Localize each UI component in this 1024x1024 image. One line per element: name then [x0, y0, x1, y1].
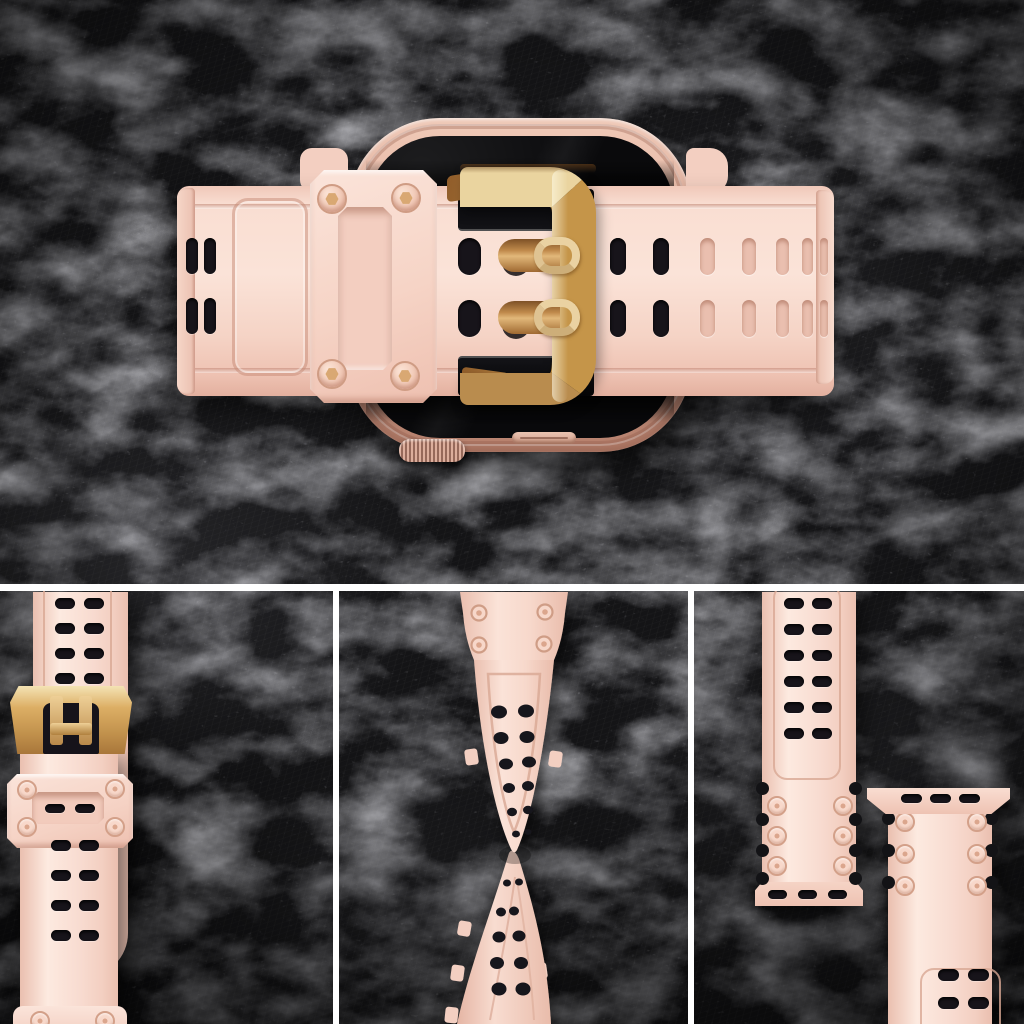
gold-buckle-frame — [460, 167, 596, 405]
perforation — [802, 300, 813, 337]
perforation — [79, 840, 99, 851]
band-end-cap-right — [816, 190, 834, 384]
strap-lug-right — [867, 788, 1010, 1024]
band-keeper — [310, 170, 437, 403]
hex-screw-icon — [317, 359, 347, 389]
rivet-screw-icon — [895, 876, 915, 896]
perforation — [45, 804, 65, 813]
perforation — [79, 870, 99, 881]
rivet-screw-icon — [17, 817, 37, 837]
rivet-screw-icon — [105, 779, 125, 799]
perforation — [820, 238, 828, 275]
lug-connector — [867, 788, 1010, 814]
strap-buckle-end — [10, 592, 132, 1023]
perforation — [610, 300, 626, 337]
rivet-screw-icon — [967, 876, 987, 896]
rivet-screw-icon — [967, 812, 987, 832]
buckle-prong-tip — [534, 299, 580, 336]
perforation — [938, 997, 959, 1009]
side-notch — [756, 782, 769, 795]
buckle-tongue — [50, 696, 92, 745]
strap-body — [888, 808, 992, 1024]
rivet-screw-icon — [105, 817, 125, 837]
lug-connector — [755, 880, 863, 906]
perforation — [186, 298, 198, 334]
tongue-crossbar — [50, 723, 92, 735]
rivet-screw-icon — [833, 826, 853, 846]
buckle-edge-shade — [460, 164, 596, 173]
perforation — [742, 238, 756, 275]
perforation — [784, 598, 804, 609]
perforation — [901, 794, 922, 803]
rivet-screw-icon — [30, 1011, 50, 1024]
perforation — [75, 804, 95, 813]
perforation — [700, 300, 715, 337]
perforation — [776, 300, 789, 337]
hex-screw-icon — [317, 184, 347, 214]
perforation — [968, 997, 989, 1009]
tongue-bar — [79, 696, 92, 745]
rivet-screw-icon — [767, 856, 787, 876]
band-keeper — [7, 774, 133, 848]
strap-lower-twist — [444, 851, 551, 1024]
digital-crown — [399, 439, 465, 462]
perforation — [784, 676, 804, 687]
rivet-screw-icon — [833, 856, 853, 876]
perforation — [700, 238, 715, 275]
perforation — [768, 890, 787, 899]
strap-perforations — [938, 969, 989, 1024]
side-notch — [849, 782, 862, 795]
twisted-strap-figure — [339, 591, 688, 1024]
perforation — [51, 840, 71, 851]
hex-screw-icon — [390, 361, 420, 391]
perforation — [812, 598, 832, 609]
band-tail-perforations — [186, 238, 216, 334]
side-notch — [756, 813, 769, 826]
hex-screw-icon — [391, 183, 421, 213]
divider-horizontal — [0, 584, 1024, 591]
side-notch — [756, 844, 769, 857]
strap-upper-twist — [460, 592, 568, 852]
perforation — [959, 794, 980, 803]
divider-vertical-1 — [333, 591, 339, 1024]
strap-perforations — [784, 598, 832, 739]
strap-perforations — [51, 840, 99, 941]
divider-vertical-2 — [688, 591, 694, 1024]
keeper-opening — [32, 792, 104, 824]
perforation — [820, 300, 828, 337]
perforation — [204, 298, 216, 334]
perforation — [802, 238, 813, 275]
side-notch — [756, 872, 769, 885]
perforation — [798, 890, 817, 899]
perforation — [938, 969, 959, 981]
perforation — [828, 890, 847, 899]
perforation — [968, 969, 989, 981]
strap-body — [762, 592, 856, 882]
side-notch — [849, 813, 862, 826]
side-notch — [882, 844, 895, 857]
perforation — [51, 900, 71, 911]
rivet-screw-icon — [895, 812, 915, 832]
hero-top-view — [0, 0, 1024, 584]
side-notch — [849, 844, 862, 857]
perforation — [610, 238, 626, 275]
product-photo — [0, 0, 1024, 1024]
side-notch — [849, 872, 862, 885]
keeper-slots — [45, 804, 95, 813]
perforation — [812, 650, 832, 661]
perforation — [79, 900, 99, 911]
buckle-sheen — [552, 170, 568, 402]
perforation — [812, 676, 832, 687]
panel-lug-connectors — [695, 591, 1024, 1024]
perforation — [784, 624, 804, 635]
rivet-screw-icon — [767, 796, 787, 816]
lug-slots — [901, 794, 980, 803]
panel-strap-tail-detail — [0, 591, 333, 1024]
perforation — [812, 728, 832, 739]
perforation — [51, 930, 71, 941]
perforation — [776, 238, 789, 275]
perforation — [812, 702, 832, 713]
lug-slots — [768, 890, 847, 899]
perforation — [653, 300, 669, 337]
perforation — [653, 238, 669, 275]
side-notch — [882, 876, 895, 889]
rivet-screw-icon — [17, 780, 37, 800]
rivet-screw-icon — [967, 844, 987, 864]
perforation — [742, 300, 756, 337]
band-embossed-panel — [232, 198, 308, 376]
second-keeper-partial — [13, 1006, 127, 1024]
strap-lug-left — [762, 592, 856, 907]
perforation — [812, 624, 832, 635]
perforation — [186, 238, 198, 274]
rivet-screw-icon — [767, 826, 787, 846]
perforation — [784, 702, 804, 713]
buckle-prong-tip — [534, 237, 580, 274]
panel-twisted-strap — [339, 591, 688, 1024]
perforation — [79, 930, 99, 941]
perforation — [204, 238, 216, 274]
perforation — [930, 794, 951, 803]
rivet-screw-icon — [895, 844, 915, 864]
rivet-screw-icon — [833, 796, 853, 816]
perforation — [784, 728, 804, 739]
side-button — [512, 432, 576, 444]
rivet-screw-icon — [95, 1011, 115, 1024]
perforation — [51, 870, 71, 881]
perforation — [784, 650, 804, 661]
keeper-opening — [338, 207, 392, 370]
gold-buckle — [10, 686, 132, 754]
tongue-bar — [50, 696, 63, 745]
